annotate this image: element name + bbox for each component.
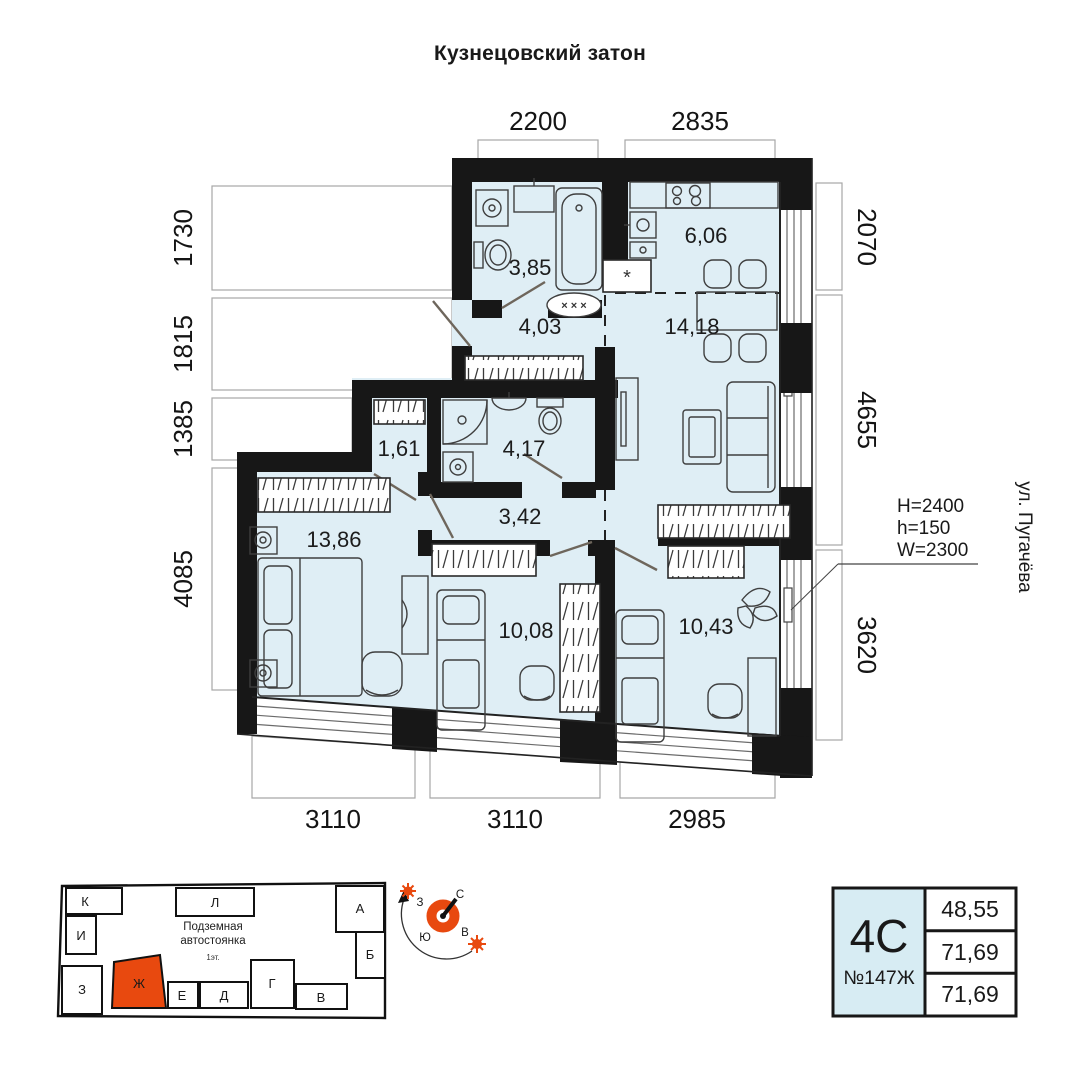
svg-text:И: И <box>76 928 85 943</box>
area-entry-hall: 4,03 <box>519 314 562 339</box>
dim-top-1: 2200 <box>509 106 567 136</box>
garage-label-2: автостоянка <box>180 935 246 947</box>
svg-text:З: З <box>78 982 86 997</box>
plan-type: 4С <box>850 910 909 962</box>
area-bedroom1: 13,86 <box>306 527 361 552</box>
area-bedroom2: 10,08 <box>498 618 553 643</box>
area-value-3: 71,69 <box>941 981 999 1007</box>
compass-east: В <box>461 927 469 939</box>
dim-top-2: 2835 <box>671 106 729 136</box>
area-value-1: 48,55 <box>941 896 999 922</box>
floorplan-canvas: Кузнецовский затон 2200 2835 1730 1815 1… <box>0 0 1080 1080</box>
svg-text:Г: Г <box>268 976 275 991</box>
area-living: 14,18 <box>664 314 719 339</box>
sun-icon <box>468 935 486 953</box>
dim-right-3: 3620 <box>852 616 882 674</box>
garage-label-3: 1эт. <box>206 953 219 962</box>
right-facade <box>780 158 812 776</box>
fridge-niche-symbol: * <box>623 267 631 289</box>
window-spec-height: H=2400 <box>897 496 964 517</box>
svg-text:К: К <box>81 894 89 909</box>
area-value-2: 71,69 <box>941 939 999 965</box>
window-handle <box>784 588 792 622</box>
apartment-number: №147Ж <box>843 967 914 989</box>
threshold-symbol: × × × <box>561 300 586 312</box>
compass-west: З <box>417 897 424 909</box>
compass-north: С <box>456 889 464 901</box>
svg-text:А: А <box>356 901 365 916</box>
dim-right-1: 2070 <box>852 208 882 266</box>
building-map: К Л А И Б З Ж Е Д Г В Подземная автостоя… <box>58 883 385 1018</box>
compass-south: Ю <box>419 932 431 944</box>
area-bedroom3: 10,43 <box>678 614 733 639</box>
window-spec-sill: h=150 <box>897 518 950 539</box>
area-closet: 1,61 <box>378 436 421 461</box>
area-bathroom1: 3,85 <box>509 255 552 280</box>
project-title: Кузнецовский затон <box>434 42 646 65</box>
svg-text:Д: Д <box>220 988 229 1003</box>
svg-text:Е: Е <box>178 988 187 1003</box>
dim-left-1: 1730 <box>168 209 198 267</box>
area-inner-hall: 3,42 <box>499 504 542 529</box>
street-label: ул. Пугачёва <box>1014 481 1035 593</box>
dim-bottom-1: 3110 <box>305 804 361 834</box>
floorplan-page: Кузнецовский затон 2200 2835 1730 1815 1… <box>0 0 1080 1080</box>
area-kitchen: 6,06 <box>685 223 728 248</box>
apartment-info-card[interactable]: 4С №147Ж 48,55 71,69 71,69 <box>833 888 1016 1016</box>
svg-text:В: В <box>317 990 326 1005</box>
dim-left-3: 1385 <box>168 400 198 458</box>
dim-right-2: 4655 <box>852 391 882 449</box>
compass: З С Ю В <box>398 883 486 959</box>
svg-text:Ж: Ж <box>133 976 145 991</box>
dim-left-4: 4085 <box>168 550 198 608</box>
dim-bottom-2: 3110 <box>487 804 543 834</box>
section-K[interactable] <box>66 888 122 914</box>
area-bathroom2: 4,17 <box>503 436 546 461</box>
dim-bottom-3: 2985 <box>668 804 726 834</box>
svg-text:Л: Л <box>211 895 220 910</box>
window-spec: H=2400 h=150 W=2300 <box>791 496 978 610</box>
svg-text:Б: Б <box>366 947 375 962</box>
garage-label-1: Подземная <box>183 921 243 933</box>
window-spec-width: W=2300 <box>897 540 968 561</box>
dim-left-2: 1815 <box>168 315 198 373</box>
